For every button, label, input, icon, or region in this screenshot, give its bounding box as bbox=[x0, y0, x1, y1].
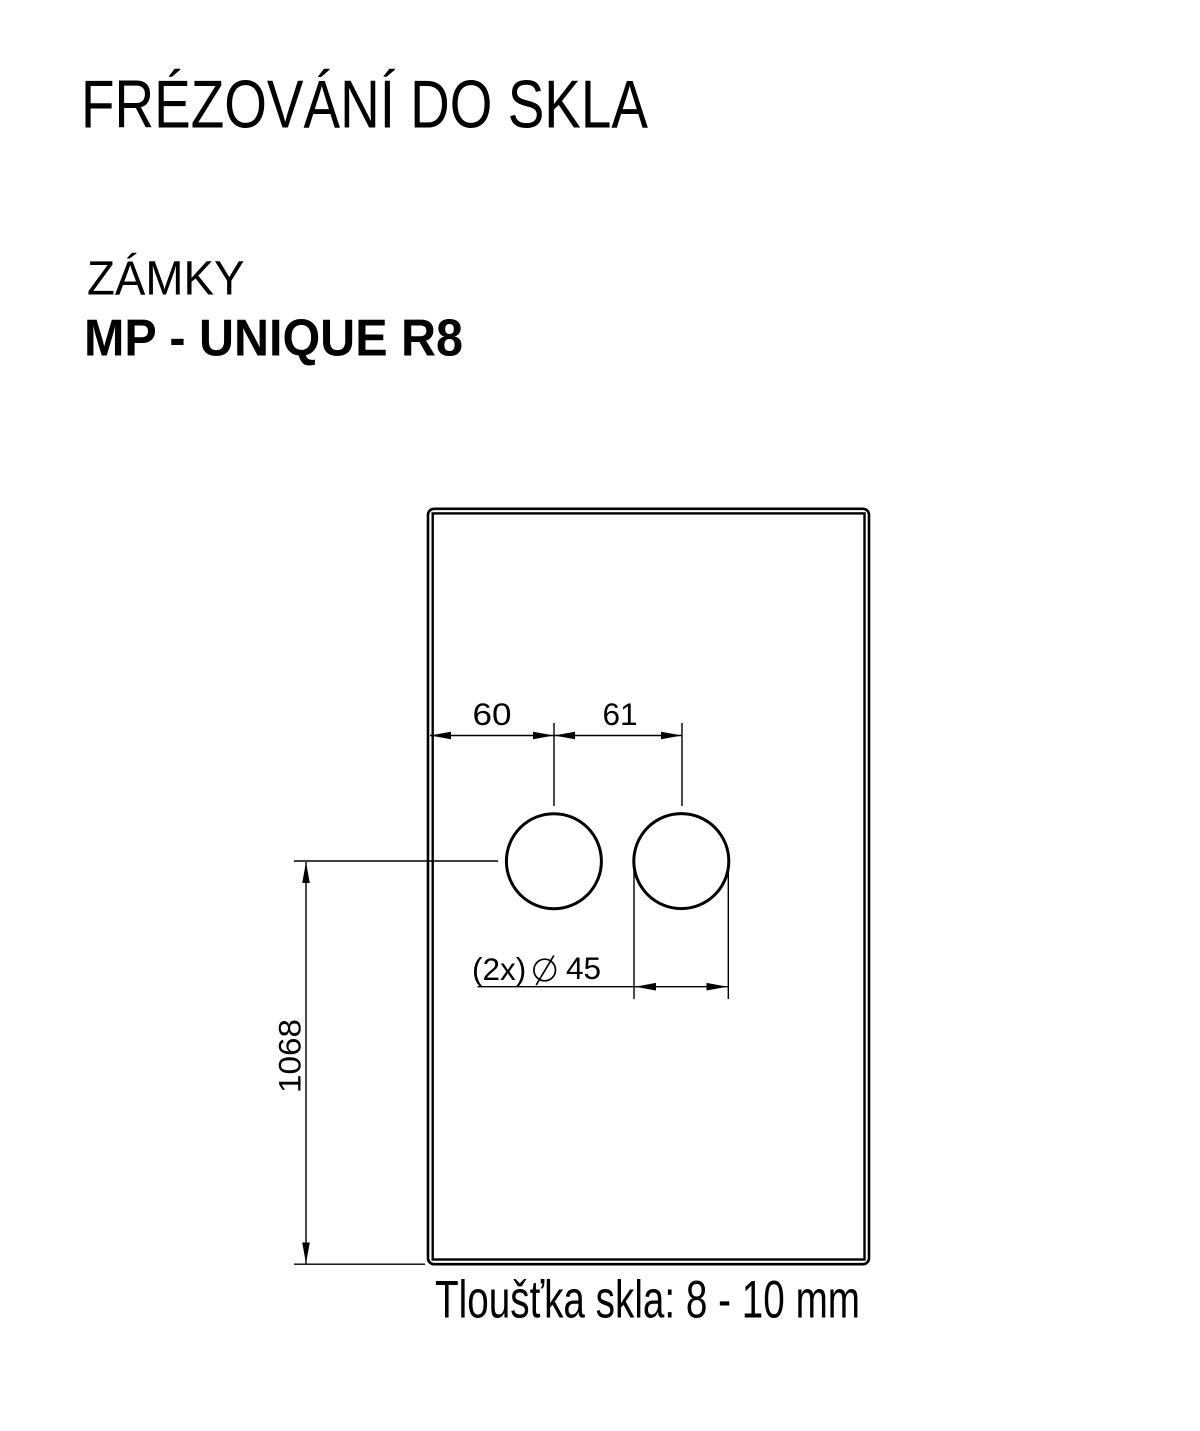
svg-text:60: 60 bbox=[473, 696, 512, 732]
svg-text:61: 61 bbox=[602, 696, 637, 732]
svg-text:1068: 1068 bbox=[271, 1019, 307, 1093]
svg-text:Tloušťka skla: 8 - 10 mm: Tloušťka skla: 8 - 10 mm bbox=[435, 1271, 860, 1330]
svg-text:(2x): (2x) bbox=[472, 951, 526, 987]
svg-text:MP - UNIQUE R8: MP - UNIQUE R8 bbox=[84, 310, 463, 368]
svg-text:FRÉZOVÁNÍ DO SKLA: FRÉZOVÁNÍ DO SKLA bbox=[81, 68, 648, 143]
svg-text:45: 45 bbox=[566, 950, 601, 986]
svg-text:ZÁMKY: ZÁMKY bbox=[87, 252, 245, 305]
